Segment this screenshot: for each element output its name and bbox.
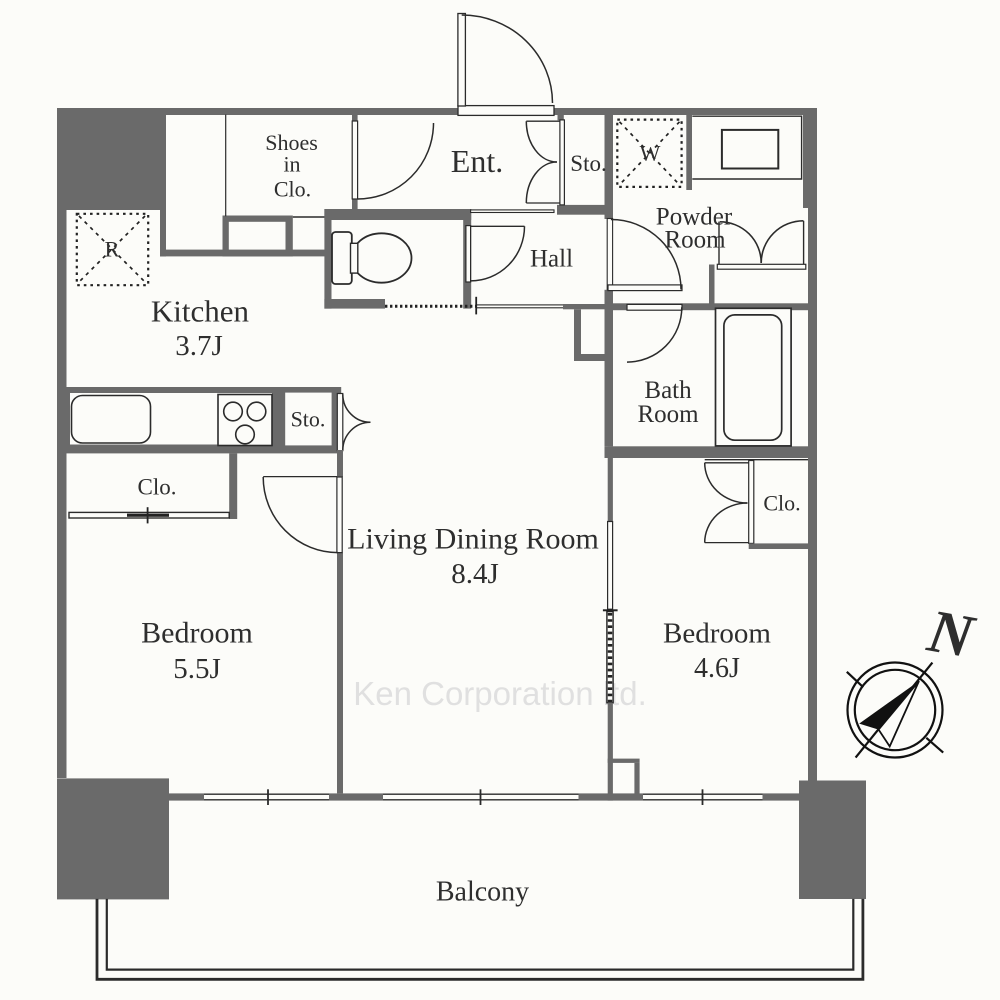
svg-text:5.5J: 5.5J	[173, 653, 221, 685]
svg-text:Ent.: Ent.	[451, 143, 503, 179]
svg-text:Sto.: Sto.	[291, 407, 326, 432]
svg-text:Bath: Bath	[644, 377, 692, 404]
svg-text:Hall: Hall	[530, 246, 573, 273]
svg-text:W: W	[640, 141, 661, 166]
svg-text:3.7J: 3.7J	[175, 330, 223, 362]
svg-text:Clo.: Clo.	[138, 475, 177, 500]
svg-text:8.4J: 8.4J	[451, 558, 499, 590]
svg-text:Sto.: Sto.	[570, 151, 606, 176]
svg-text:Room: Room	[664, 227, 726, 254]
svg-text:4.6J: 4.6J	[694, 653, 740, 684]
svg-text:Room: Room	[637, 401, 699, 428]
svg-text:Living Dining Room: Living Dining Room	[347, 523, 599, 556]
svg-text:Clo.: Clo.	[274, 177, 311, 202]
svg-text:in: in	[283, 152, 300, 177]
svg-text:Kitchen: Kitchen	[151, 294, 250, 329]
svg-text:Clo.: Clo.	[763, 491, 800, 516]
svg-text:Bedroom: Bedroom	[663, 618, 771, 650]
svg-text:Balcony: Balcony	[436, 877, 529, 908]
svg-text:Bedroom: Bedroom	[141, 617, 253, 650]
svg-text:R: R	[105, 237, 120, 262]
svg-text:Ken Corporation ltd.: Ken Corporation ltd.	[353, 675, 647, 712]
